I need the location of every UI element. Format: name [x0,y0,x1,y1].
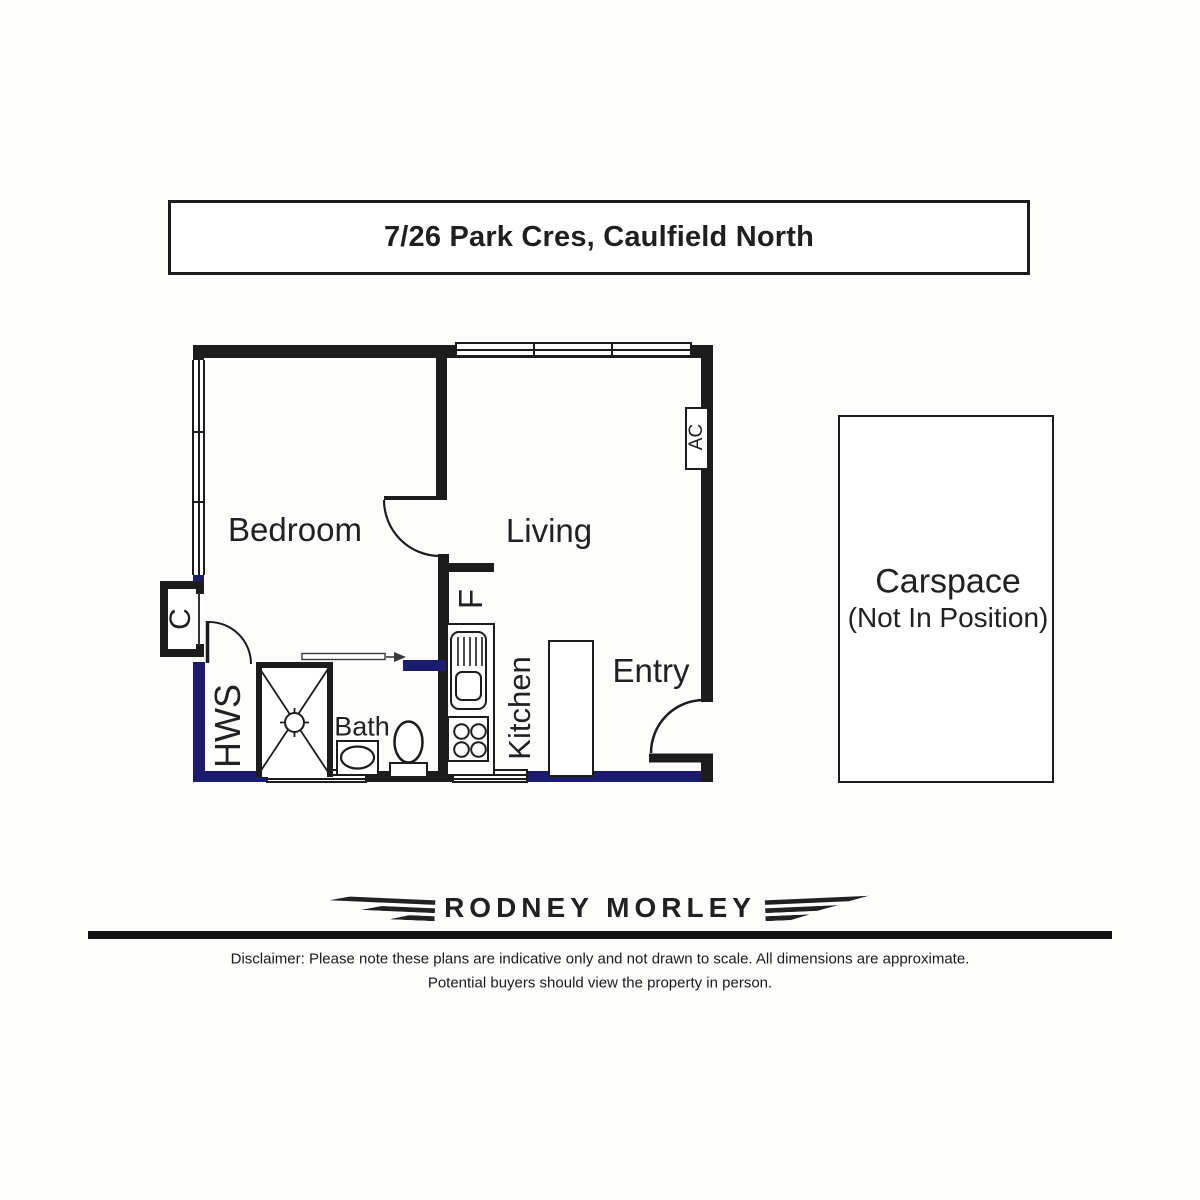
kitchen-sink-bowl [455,671,482,701]
kitchen-bench [548,640,594,777]
address-title: 7/26 Park Cres, Caulfield North [384,221,814,254]
label-fridge: F [452,589,490,609]
closet-stub-bottom [196,644,204,657]
wall-hws-left [193,662,205,782]
closet-door-line [198,593,200,645]
cooktop [447,716,489,762]
disclaimer-line-1: Disclaimer: Please note these plans are … [231,951,970,968]
carspace-title: Carspace [875,563,1021,602]
disclaimer-line-2: Potential buyers should view the propert… [428,975,772,992]
toilet-icon [390,722,427,778]
wall-bottom-right-corner [701,771,713,782]
room-label-living: Living [506,512,592,550]
bath-vanity [336,740,379,776]
door-entry [649,700,713,758]
wall-bath-top-navy [403,660,449,671]
agency-logo: RODNEY MORLEY [329,892,871,924]
shower-cubicle [256,662,333,777]
logo-right-wing-icon [764,893,871,922]
room-label-entry: Entry [612,652,689,690]
room-label-bath: Bath [334,712,390,743]
footer-divider [88,931,1112,939]
sliding-door-arrow [302,652,406,662]
carspace-subtitle: (Not In Position) [848,602,1049,634]
wall-bedroom-living [436,355,447,500]
address-title-box: 7/26 Park Cres, Caulfield North [168,200,1030,275]
wall-fridge-nook-top [449,563,494,572]
door-bath [208,621,252,664]
door-bedroom-living [384,498,441,556]
wall-right-upper [701,345,713,702]
room-label-bedroom: Bedroom [228,511,362,549]
agency-logo-text: RODNEY MORLEY [444,892,756,924]
room-label-hws: HWS [207,684,249,768]
logo-left-wing-icon [329,893,436,922]
room-label-kitchen: Kitchen [502,656,538,759]
window-bedroom-left [192,360,205,575]
window-living-top [455,342,692,357]
label-ac: AC [686,424,708,450]
label-closet: C [164,608,198,630]
floorplan-page: 7/26 Park Cres, Caulfield North [0,0,1200,1200]
